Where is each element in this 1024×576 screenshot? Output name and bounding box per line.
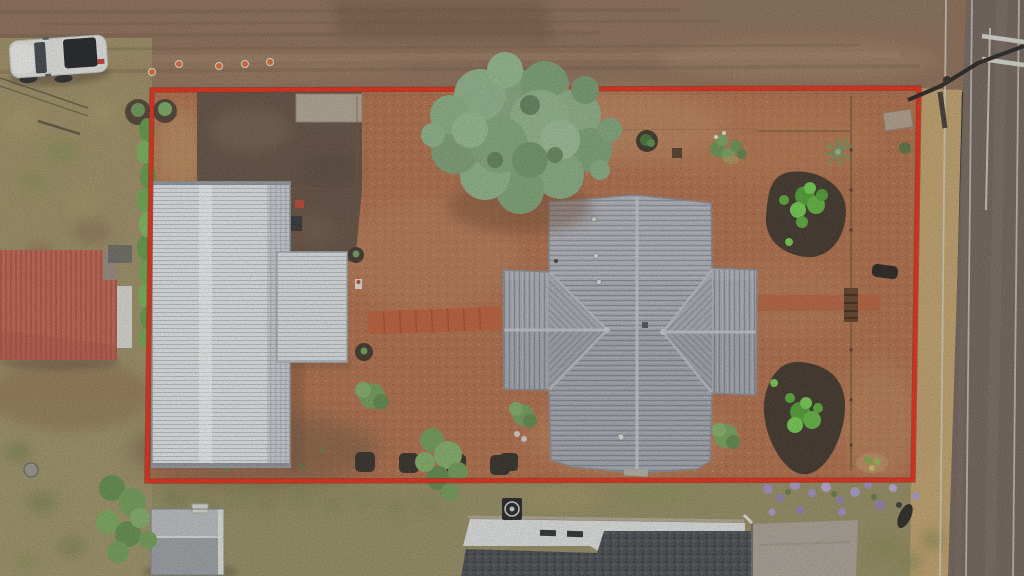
aerial-photo-canvas (0, 0, 1024, 576)
aerial-photo (0, 0, 1024, 576)
photo-grain-light (0, 0, 1024, 576)
